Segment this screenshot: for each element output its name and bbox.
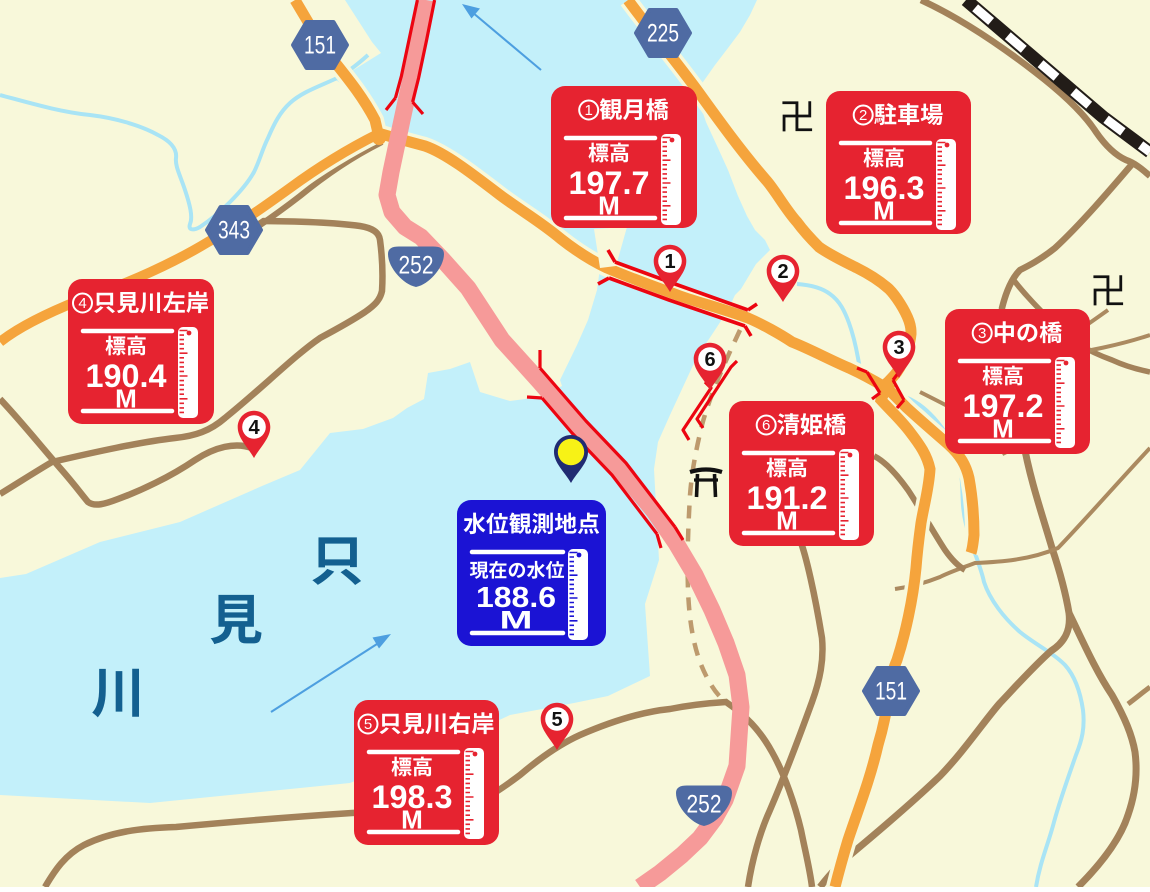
svg-text:225: 225 — [647, 20, 679, 48]
svg-text:343: 343 — [218, 217, 250, 245]
svg-text:151: 151 — [875, 678, 907, 706]
svg-text:M: M — [500, 607, 533, 635]
svg-text:2: 2 — [777, 261, 788, 283]
svg-text:6: 6 — [762, 417, 770, 434]
svg-text:4: 4 — [78, 295, 86, 312]
svg-text:6: 6 — [704, 349, 715, 371]
svg-text:1: 1 — [585, 102, 593, 119]
svg-text:151: 151 — [304, 32, 336, 60]
svg-text:1: 1 — [664, 251, 675, 273]
svg-text:252: 252 — [399, 252, 434, 280]
svg-text:5: 5 — [364, 716, 372, 733]
svg-text:3: 3 — [978, 325, 986, 342]
svg-text:2: 2 — [859, 107, 867, 124]
svg-text:5: 5 — [551, 709, 562, 731]
svg-text:4: 4 — [248, 417, 260, 439]
svg-text:252: 252 — [687, 791, 722, 819]
svg-text:3: 3 — [893, 337, 904, 359]
